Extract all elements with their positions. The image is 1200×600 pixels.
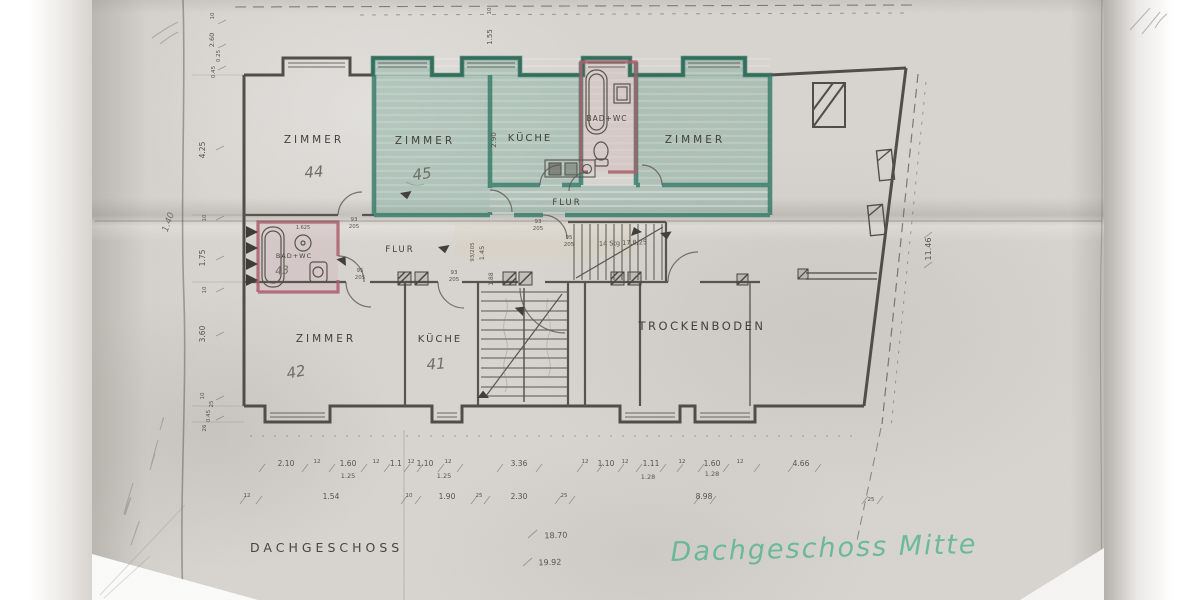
scan-noise-texture: [92, 0, 1104, 600]
floor-plan-drawing: ZIMMER 44 ZIMMER 45 KÜCHE BAD+WC ZIMMER …: [0, 0, 1200, 600]
scanned-floor-plan: ZIMMER 44 ZIMMER 45 KÜCHE BAD+WC ZIMMER …: [0, 0, 1200, 600]
